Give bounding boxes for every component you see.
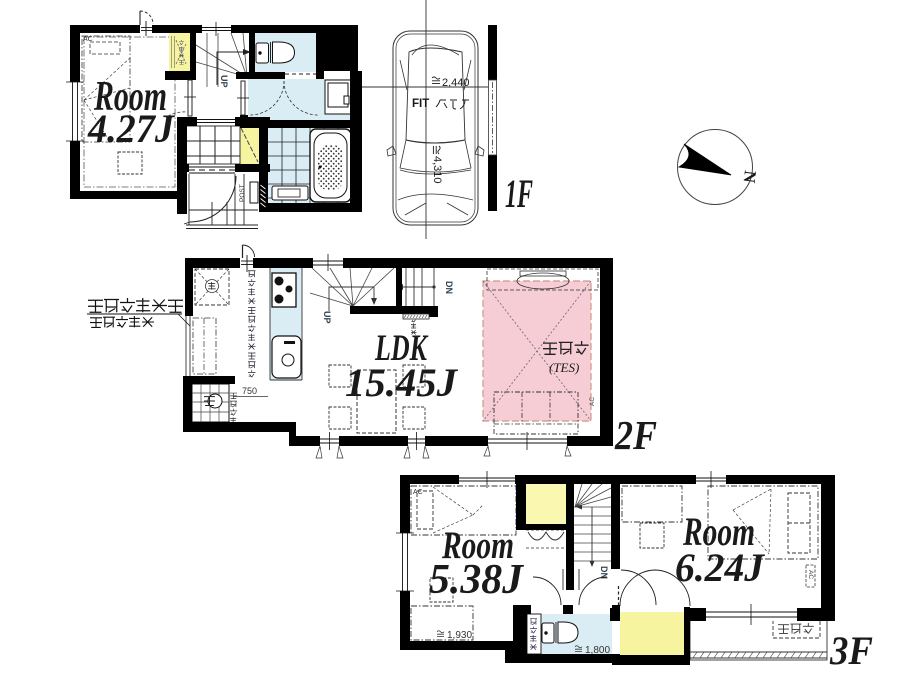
- svg-text:2F: 2F: [614, 412, 657, 458]
- svg-text:DN: DN: [444, 281, 454, 294]
- svg-text:15.45J: 15.45J: [345, 360, 459, 405]
- svg-text:AC: AC: [413, 489, 423, 496]
- svg-text:4,310: 4,310: [431, 156, 443, 184]
- svg-text:(TES): (TES): [549, 360, 579, 375]
- svg-text:4.27J: 4.27J: [87, 106, 176, 151]
- svg-text:UP: UP: [219, 75, 229, 88]
- svg-text:UP: UP: [322, 311, 332, 324]
- svg-text:6.24J: 6.24J: [675, 545, 766, 590]
- svg-text:FIT: FIT: [412, 98, 429, 110]
- svg-text:1F: 1F: [505, 171, 533, 216]
- svg-text:AC: AC: [807, 570, 814, 579]
- svg-text:1,930: 1,930: [447, 630, 472, 641]
- svg-text:5.38J: 5.38J: [429, 557, 525, 603]
- svg-text:AC: AC: [589, 397, 596, 406]
- svg-text:3F: 3F: [829, 628, 873, 673]
- svg-text:750: 750: [242, 386, 257, 396]
- svg-text:POST: POST: [239, 184, 246, 202]
- svg-text:AC: AC: [83, 36, 93, 43]
- svg-text:2,440: 2,440: [442, 77, 470, 89]
